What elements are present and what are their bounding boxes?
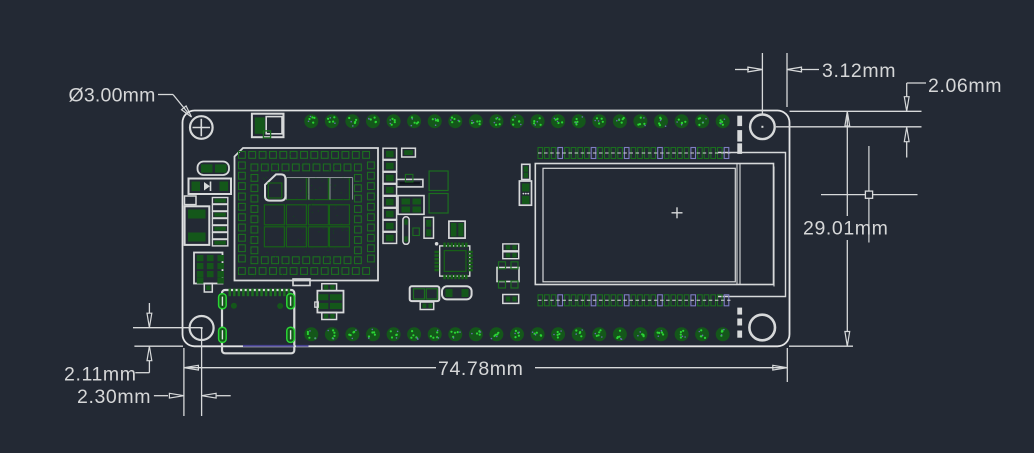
svg-text:2.06mm: 2.06mm	[928, 75, 1002, 97]
svg-text:74.78mm: 74.78mm	[438, 358, 524, 380]
svg-text:2.30mm: 2.30mm	[77, 386, 151, 408]
svg-text:Ø3.00mm: Ø3.00mm	[69, 85, 156, 107]
svg-text:29.01mm: 29.01mm	[803, 218, 889, 240]
svg-text:3.12mm: 3.12mm	[822, 60, 896, 82]
svg-text:2.11mm: 2.11mm	[64, 364, 137, 386]
